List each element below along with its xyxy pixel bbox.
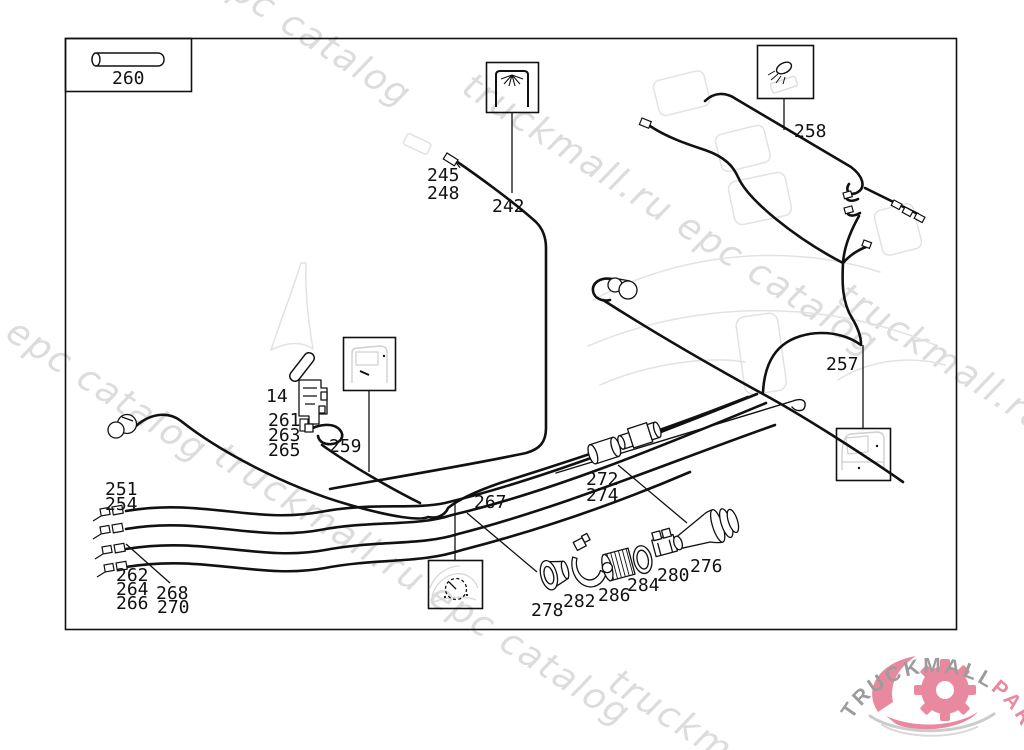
part-label-266: 266 <box>116 593 149 614</box>
part-278-socket <box>537 556 572 592</box>
part-label-270: 270 <box>157 597 190 618</box>
part-label-242: 242 <box>492 196 525 217</box>
connector-terminals <box>93 118 925 577</box>
terminal <box>891 200 902 210</box>
watermark-text: truckmall.ru epc catalog <box>0 0 419 116</box>
faint-roof-panel <box>727 171 793 226</box>
terminal <box>844 206 853 214</box>
reading-lamp-head <box>775 60 794 76</box>
faint-console-outline <box>271 263 313 350</box>
leader-line-272-to-276 <box>618 465 687 523</box>
wiring-harness-diagram: truckmall.ru epc catalog truckmall.ru ep… <box>0 0 1024 750</box>
part-label-280: 280 <box>657 565 690 586</box>
part-label-276: 276 <box>690 556 723 577</box>
part-label-282: 282 <box>563 591 596 612</box>
part-label-265: 265 <box>268 440 301 461</box>
part-label-267: 267 <box>474 492 507 513</box>
faint-connector-ghost <box>403 133 432 155</box>
parts-diagram-page: truckmall.ru epc catalog truckmall.ru ep… <box>0 0 1024 750</box>
connector-row-2 <box>93 523 123 539</box>
watermark-text: truckmall.ru epc catalog <box>207 435 638 735</box>
harness-position-dot <box>383 355 385 357</box>
faint-roof-panel <box>714 124 772 173</box>
part-label-257: 257 <box>826 354 859 375</box>
gauge-dot <box>466 594 468 596</box>
harness-position-dot <box>858 467 860 469</box>
connector-row-3 <box>95 543 125 559</box>
part-label-259: 259 <box>329 436 362 457</box>
reading-lamp-base-ghost <box>770 76 798 94</box>
part-label-258: 258 <box>794 121 827 142</box>
harness-position-mark <box>360 371 369 375</box>
cab-rear-window <box>356 352 378 365</box>
inline-sleeve-272 <box>586 436 623 465</box>
cab-rear-icon <box>352 346 387 383</box>
part-label-248: 248 <box>427 183 460 204</box>
gauge-dot <box>444 596 446 598</box>
part-label-254: 254 <box>105 494 138 515</box>
part-label-286: 286 <box>598 585 631 606</box>
terminal <box>639 118 651 128</box>
harness-wires <box>126 94 918 571</box>
part-label-278: 278 <box>531 600 564 621</box>
switch-body <box>299 380 327 424</box>
part-labels: 260 245 248 242 258 257 14 261 263 265 2… <box>105 68 859 621</box>
terminal <box>843 191 852 199</box>
faint-panel <box>873 202 923 256</box>
faint-roof-panel <box>652 69 711 117</box>
part-label-274: 274 <box>586 485 619 506</box>
sleeve-end <box>92 53 100 66</box>
part-label-14: 14 <box>266 386 288 407</box>
terminal <box>902 207 913 217</box>
part-276-boot <box>668 503 743 556</box>
sleeve-tube-icon <box>92 53 164 66</box>
cab-front-windshield <box>842 436 884 462</box>
harness-position-dot <box>876 445 878 447</box>
reading-lamp-icon <box>768 60 798 94</box>
part-label-260: 260 <box>112 68 145 89</box>
sleeve-body <box>92 53 164 66</box>
part-label-284: 284 <box>627 575 660 596</box>
watermark-text: truckmall.ru epc catalog <box>0 171 215 471</box>
